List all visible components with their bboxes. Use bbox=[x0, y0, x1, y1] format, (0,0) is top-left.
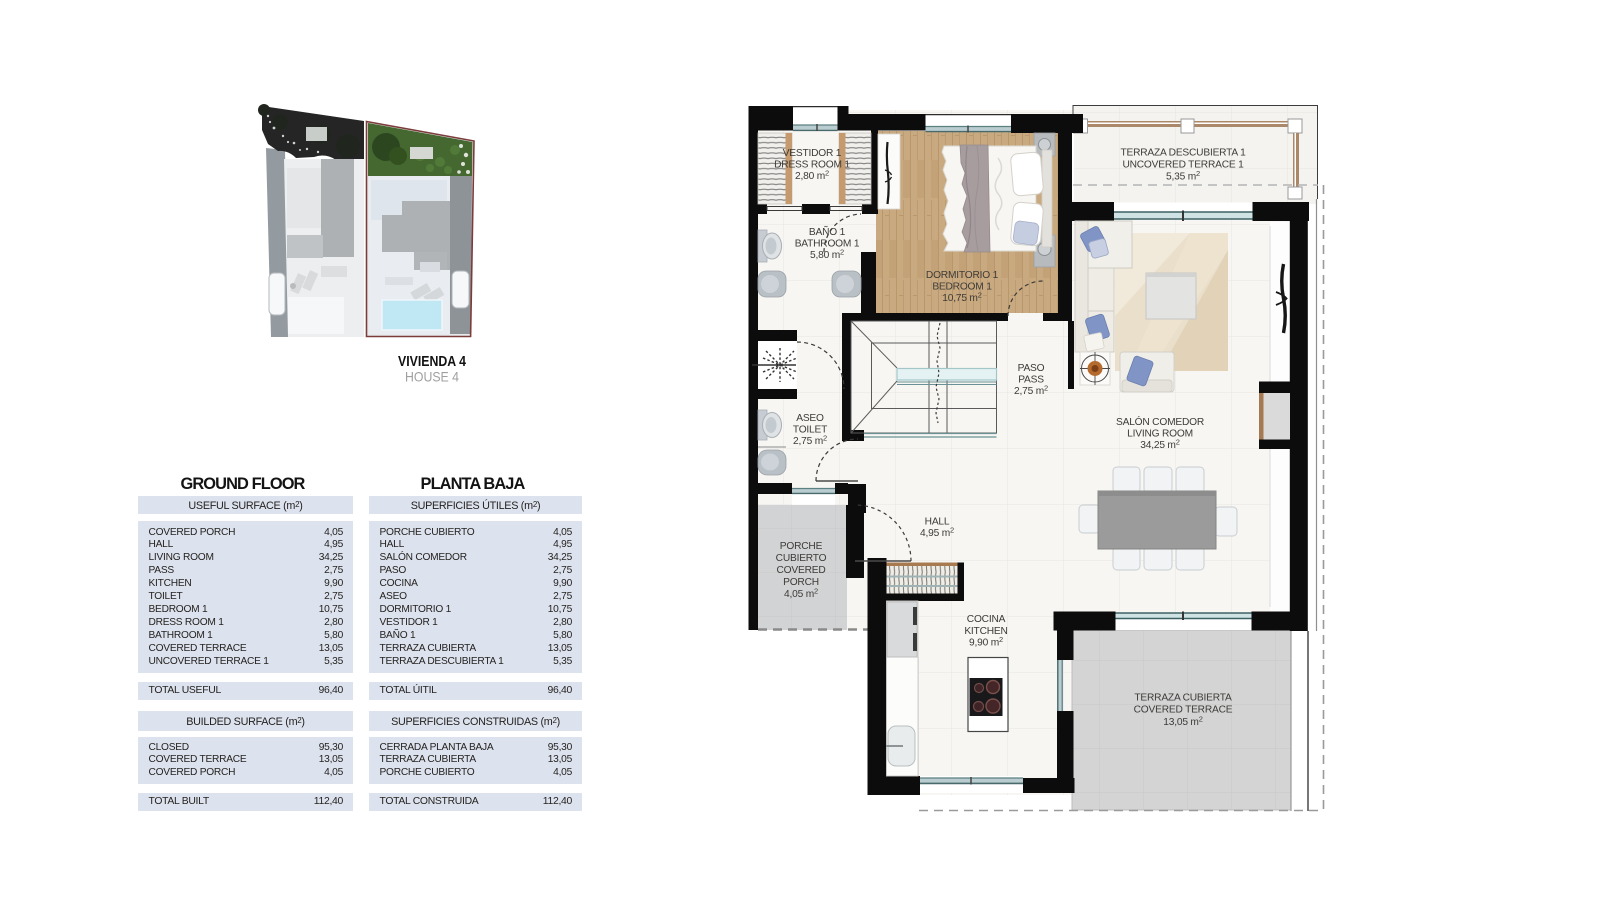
svg-text:COCINA: COCINA bbox=[967, 614, 1006, 625]
svg-text:2,80 m2: 2,80 m2 bbox=[795, 169, 829, 183]
svg-text:5,35 m2: 5,35 m2 bbox=[1166, 169, 1200, 183]
svg-text:BEDROOM 1: BEDROOM 1 bbox=[932, 282, 992, 293]
svg-text:VESTIDOR 1: VESTIDOR 1 bbox=[783, 148, 842, 159]
svg-text:LIVING ROOM: LIVING ROOM bbox=[1127, 429, 1193, 440]
svg-text:BAÑO 1: BAÑO 1 bbox=[809, 225, 846, 238]
svg-text:2,75 m2: 2,75 m2 bbox=[793, 434, 827, 448]
svg-text:10,75 m2: 10,75 m2 bbox=[942, 291, 981, 305]
svg-text:PORCHE: PORCHE bbox=[780, 541, 823, 552]
svg-text:13,05 m2: 13,05 m2 bbox=[1163, 715, 1202, 729]
svg-text:4,05 m2: 4,05 m2 bbox=[784, 587, 818, 601]
svg-text:COVERED TERRACE: COVERED TERRACE bbox=[1134, 705, 1233, 716]
svg-text:2,75 m2: 2,75 m2 bbox=[1014, 384, 1048, 398]
svg-text:DRESS ROOM 1: DRESS ROOM 1 bbox=[774, 160, 850, 171]
svg-text:9,90 m2: 9,90 m2 bbox=[969, 635, 1003, 649]
svg-text:5,80 m2: 5,80 m2 bbox=[810, 248, 844, 262]
svg-text:BATHROOM 1: BATHROOM 1 bbox=[795, 239, 860, 250]
svg-text:CUBIERTO: CUBIERTO bbox=[776, 553, 827, 564]
svg-text:TERRAZA DESCUBIERTA 1: TERRAZA DESCUBIERTA 1 bbox=[1120, 148, 1246, 159]
svg-text:ASEO: ASEO bbox=[796, 413, 824, 424]
svg-text:PASS: PASS bbox=[1018, 375, 1044, 386]
svg-text:TOILET: TOILET bbox=[793, 425, 827, 436]
svg-text:DORMITORIO 1: DORMITORIO 1 bbox=[926, 270, 999, 281]
svg-text:TERRAZA CUBIERTA: TERRAZA CUBIERTA bbox=[1134, 693, 1232, 704]
svg-text:SALÓN COMEDOR: SALÓN COMEDOR bbox=[1116, 415, 1204, 428]
svg-text:HALL: HALL bbox=[925, 517, 950, 528]
svg-text:VIVIENDA 4: VIVIENDA 4 bbox=[398, 354, 466, 370]
svg-text:COVERED: COVERED bbox=[777, 565, 826, 576]
svg-text:34,25 m2: 34,25 m2 bbox=[1140, 438, 1179, 452]
svg-text:HOUSE 4: HOUSE 4 bbox=[405, 370, 459, 385]
svg-text:UNCOVERED TERRACE 1: UNCOVERED TERRACE 1 bbox=[1122, 160, 1244, 171]
svg-text:PASO: PASO bbox=[1018, 363, 1045, 374]
svg-text:4,95 m2: 4,95 m2 bbox=[920, 526, 954, 540]
